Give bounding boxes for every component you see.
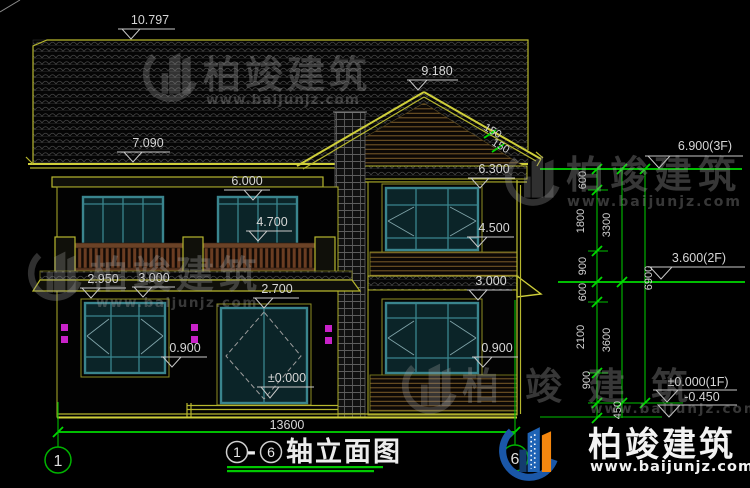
watermark-url: www.baijunjz.com bbox=[206, 92, 360, 108]
chain-seg2: 1800 bbox=[575, 209, 587, 233]
dim-door-head: 2.700 bbox=[261, 282, 292, 296]
watermark-url: www.baijunjz.com bbox=[590, 401, 750, 417]
drawing-title: 1 - 6 轴立面图 bbox=[227, 436, 403, 472]
dim-gable-peak: 9.180 bbox=[421, 64, 452, 78]
dim-win2f-head: 6.000 bbox=[231, 174, 262, 188]
level-2f: 3.600(2F) bbox=[672, 251, 726, 265]
watermark-name: 柏竣建筑 bbox=[203, 53, 371, 97]
dim-right-win2f-head: 4.500 bbox=[478, 221, 509, 235]
dim-right-floor2: 3.000 bbox=[475, 274, 506, 288]
chain-seg5: 2100 bbox=[575, 325, 587, 349]
brand-logo: 柏竣建筑 www.baijunjz.com bbox=[503, 425, 750, 477]
watermark-name: 柏竣建筑 bbox=[566, 153, 742, 197]
chain-total: 6900 bbox=[643, 266, 655, 290]
title-separator: - bbox=[247, 436, 258, 466]
title-axis-to: 6 bbox=[267, 444, 275, 460]
level-3f: 6.900(3F) bbox=[678, 139, 732, 153]
title-axis-from: 1 bbox=[233, 444, 241, 460]
left-fascia-band bbox=[52, 177, 323, 187]
axis-1-label: 1 bbox=[54, 453, 63, 470]
dim-ridge: 10.797 bbox=[131, 13, 169, 27]
chain-seg4: 600 bbox=[577, 283, 589, 301]
dim-main-eave: 7.090 bbox=[132, 136, 163, 150]
chain-sub1: 3300 bbox=[601, 213, 613, 237]
watermark-url: www.baijunjz.com bbox=[567, 194, 742, 210]
window-2f-right bbox=[382, 184, 482, 254]
dim-right-eave: 6.300 bbox=[478, 162, 509, 176]
dim-ground: ±0.000 bbox=[268, 371, 306, 385]
dim-sill-left: 0.900 bbox=[169, 341, 200, 355]
title-text: 轴立面图 bbox=[286, 436, 402, 467]
railing-post-right bbox=[315, 237, 335, 273]
entry-door bbox=[217, 304, 311, 405]
watermark-name: 柏竣建筑 bbox=[90, 253, 262, 297]
window-2f-left-a bbox=[83, 197, 163, 246]
right-wing-spandrel-siding bbox=[370, 252, 517, 276]
dim-overall-width: 13600 bbox=[270, 418, 305, 432]
axis-6-label: 6 bbox=[511, 451, 520, 468]
chain-seg3: 900 bbox=[577, 257, 589, 275]
dim-sill-right: 0.900 bbox=[481, 341, 512, 355]
watermark-url: www.baijunjz.com bbox=[96, 295, 258, 311]
brand-logo-url: www.baijunjz.com bbox=[590, 459, 750, 475]
chain-sub2: 3600 bbox=[601, 328, 613, 352]
cad-elevation-drawing: 1 6 10.797 7.090 9.180 6.000 6.300 4.500… bbox=[0, 0, 750, 488]
watermark-roof: 柏竣建筑 www.baijunjz.com bbox=[146, 53, 371, 109]
dim-railing-top: 4.700 bbox=[256, 215, 287, 229]
